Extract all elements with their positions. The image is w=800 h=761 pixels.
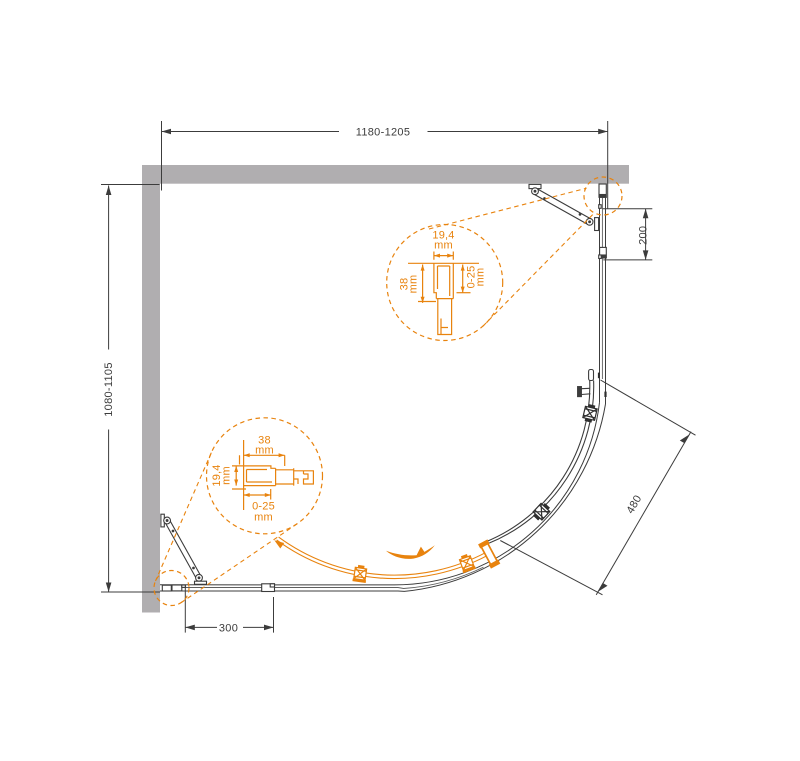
svg-text:1080-1105: 1080-1105: [103, 362, 115, 417]
svg-text:200: 200: [638, 226, 650, 245]
svg-text:mm: mm: [255, 444, 274, 456]
svg-text:mm: mm: [434, 240, 453, 252]
svg-text:mm: mm: [408, 275, 420, 294]
svg-text:mm: mm: [254, 512, 273, 524]
svg-text:mm: mm: [475, 268, 487, 287]
svg-text:300: 300: [219, 622, 238, 634]
svg-text:mm: mm: [221, 466, 233, 485]
svg-text:1180-1205: 1180-1205: [356, 127, 411, 139]
